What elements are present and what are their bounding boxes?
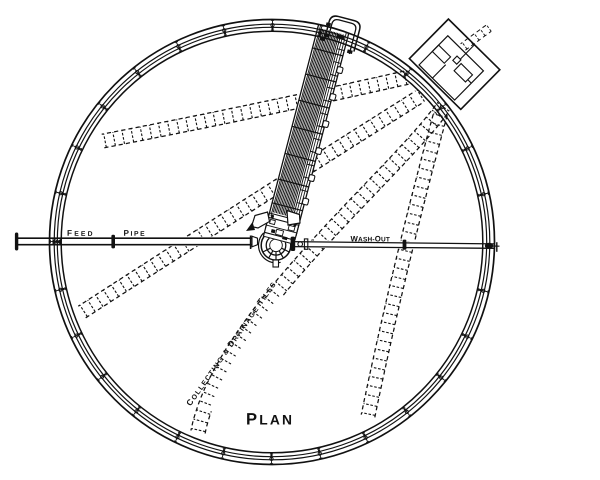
svg-text:PLAN: PLAN [246, 411, 294, 429]
svg-text:PIPE: PIPE [123, 229, 146, 238]
svg-text:WASH-OUT: WASH-OUT [350, 234, 390, 243]
svg-text:FEED: FEED [67, 229, 95, 238]
